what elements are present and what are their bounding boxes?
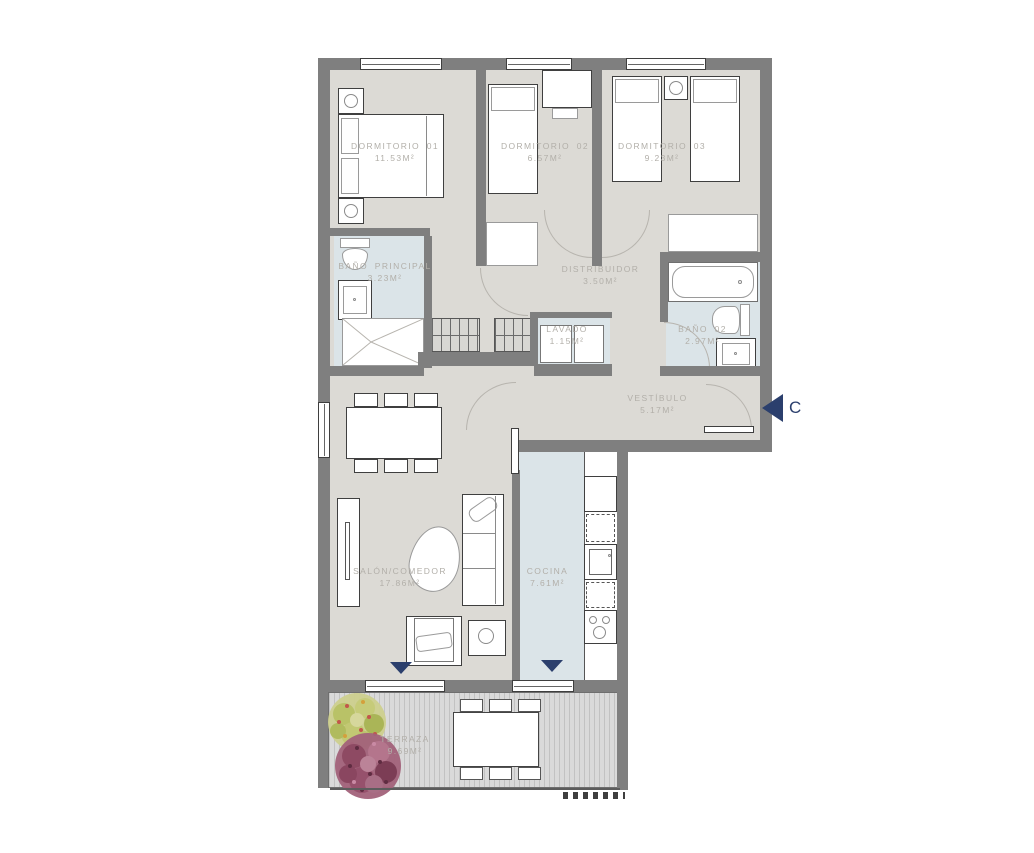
room-label-terraza: TERRAZA 9.69m² xyxy=(346,733,464,758)
entrance-letter: C xyxy=(789,398,801,418)
room-area: 3.50m² xyxy=(528,275,673,287)
wall-terrace-left xyxy=(318,680,328,788)
lamp-icon xyxy=(344,204,358,218)
burner-icon xyxy=(593,626,606,639)
wall-wardrobe-band xyxy=(418,352,534,366)
room-name: SALÓN/COMEDOR xyxy=(320,565,480,577)
shower-tray xyxy=(342,318,424,366)
wall-kitchen-right xyxy=(617,452,628,790)
wall-dorm02-dorm03 xyxy=(592,70,602,266)
pillow xyxy=(615,79,659,103)
room-area: 11.53m² xyxy=(315,152,475,164)
toilet-tank xyxy=(340,238,370,248)
door-leaf-kitchen xyxy=(511,428,519,474)
room-label-distribuidor: DISTRIBUIDOR 3.50m² xyxy=(528,263,673,288)
floor-plan-canvas: DORMITORIO 01 11.53m² DORMITORIO 02 6.57… xyxy=(0,0,1034,853)
terrace-table xyxy=(453,712,539,767)
wall-bano02-top xyxy=(660,252,760,262)
room-area: 3.23m² xyxy=(317,272,453,284)
room-name: TERRAZA xyxy=(346,733,464,745)
bathtub-drain-icon xyxy=(738,280,742,284)
dining-chair xyxy=(414,393,438,407)
room-area: 17.86m² xyxy=(320,577,480,589)
room-label-dormitorio-01: DORMITORIO 01 11.53m² xyxy=(315,140,475,165)
wall-dorm01-bano xyxy=(330,228,430,236)
window-dorm03 xyxy=(626,58,706,70)
room-area: 9.23m² xyxy=(582,152,742,164)
wall-cocina-top xyxy=(512,440,617,452)
sofa-seat-line xyxy=(463,533,495,534)
kitchen-unit-dashed xyxy=(586,514,615,542)
room-label-dormitorio-03: DORMITORIO 03 9.23m² xyxy=(582,140,742,165)
sink-drain-icon xyxy=(734,352,737,355)
terrace-chair xyxy=(460,767,483,780)
room-area: 1.15m² xyxy=(522,335,612,347)
terrace-door-salon xyxy=(365,680,445,692)
window-salon-left xyxy=(318,402,330,458)
terrace-door-marker-cocina-icon xyxy=(541,660,563,672)
wall-under-lavado xyxy=(534,364,612,376)
entrance-arrow-icon xyxy=(762,394,783,422)
terrace-chair xyxy=(518,699,541,712)
dining-chair xyxy=(384,393,408,407)
wall-dorm01-dorm02 xyxy=(476,70,486,266)
terrace-chair xyxy=(489,699,512,712)
fridge xyxy=(584,476,617,512)
dining-chair xyxy=(354,459,378,473)
wall-bano02-bottom xyxy=(660,366,760,376)
window-dorm01 xyxy=(360,58,442,70)
shower-tray-lines-icon xyxy=(343,319,423,365)
room-label-cocina: COCINA 7.61m² xyxy=(490,565,605,590)
door-leaf-entrance xyxy=(704,426,754,433)
lamp-icon xyxy=(344,94,358,108)
room-name: DORMITORIO 03 xyxy=(582,140,742,152)
wall-lavado-top xyxy=(530,312,612,318)
room-name: COCINA xyxy=(490,565,605,577)
kitchen-sink-drain-icon xyxy=(608,554,611,557)
dining-chair xyxy=(354,393,378,407)
wardrobe-dorm03 xyxy=(668,214,758,252)
room-area: 5.17m² xyxy=(600,404,715,416)
terrace-door-marker-salon-icon xyxy=(390,662,412,674)
window-dorm02 xyxy=(506,58,572,70)
pillow xyxy=(491,87,535,111)
room-name: DORMITORIO 01 xyxy=(315,140,475,152)
sink-drain-icon xyxy=(353,298,356,301)
wall-under-shower xyxy=(330,366,424,376)
room-name: DISTRIBUIDOR xyxy=(528,263,673,275)
room-label-salon-comedor: SALÓN/COMEDOR 17.86m² xyxy=(320,565,480,590)
dining-chair xyxy=(414,459,438,473)
lamp-icon xyxy=(669,81,683,95)
terrace-chair xyxy=(460,699,483,712)
pillow xyxy=(693,79,737,103)
terrace-chair xyxy=(518,767,541,780)
room-label-vestibulo: VESTÍBULO 5.17m² xyxy=(600,392,715,417)
wall-bano-principal-right xyxy=(424,236,432,368)
room-area: 2.97m² xyxy=(650,335,755,347)
room-name: BAÑO PRINCIPAL xyxy=(317,260,453,272)
room-label-lavado: LAVADO 1.15m² xyxy=(522,323,612,348)
room-label-bano-02: BAÑO 02 2.97m² xyxy=(650,323,755,348)
burner-icon xyxy=(602,616,610,624)
room-name: BAÑO 02 xyxy=(650,323,755,335)
closet-dorm02 xyxy=(486,222,538,266)
room-label-bano-principal: BAÑO PRINCIPAL 3.23m² xyxy=(317,260,453,285)
terrace-railing-posts xyxy=(563,792,625,799)
side-table-decor-icon xyxy=(478,628,494,644)
terrace-edge-line xyxy=(330,788,620,790)
room-area: 9.69m² xyxy=(346,745,464,757)
wall-right xyxy=(760,58,772,452)
room-area: 7.61m² xyxy=(490,577,605,589)
room-name: VESTÍBULO xyxy=(600,392,715,404)
desk xyxy=(542,70,592,108)
room-name: LAVADO xyxy=(522,323,612,335)
terrace-door-cocina xyxy=(512,680,574,692)
terrace-chair xyxy=(489,767,512,780)
desk-drawer xyxy=(552,108,578,119)
burner-icon xyxy=(589,616,597,624)
dining-table xyxy=(346,407,442,459)
dining-chair xyxy=(384,459,408,473)
